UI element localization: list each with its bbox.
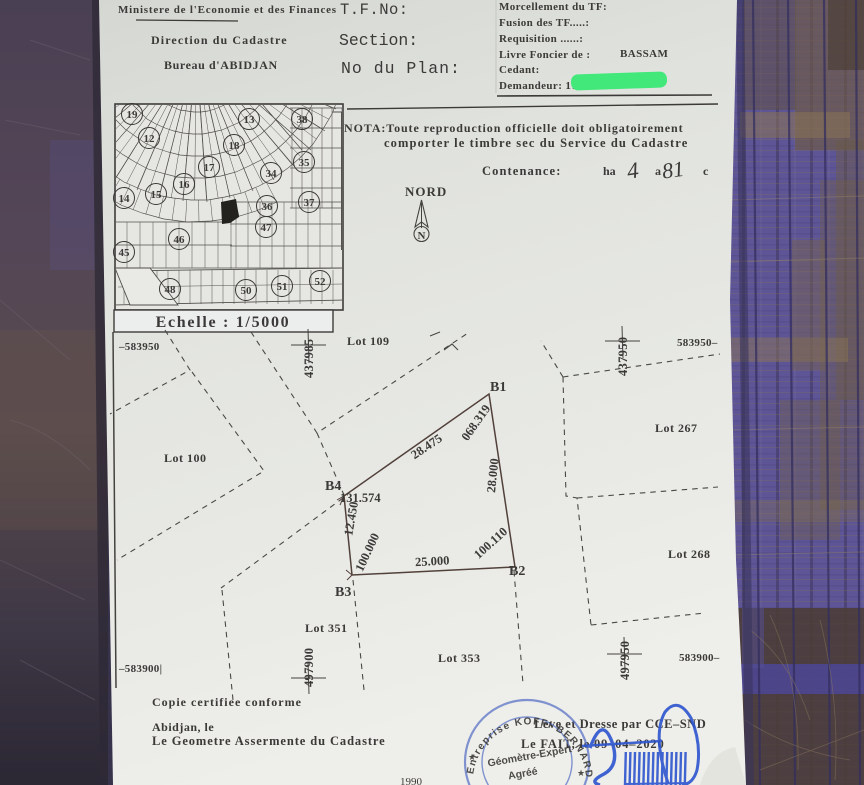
- svg-text:Requisition ......:: Requisition ......:: [499, 33, 583, 45]
- svg-text:Lot 109: Lot 109: [347, 334, 390, 348]
- svg-text:18: 18: [229, 140, 241, 152]
- svg-text:16: 16: [179, 179, 191, 191]
- svg-text:35: 35: [299, 157, 311, 169]
- svg-text:No du Plan:: No du Plan:: [341, 59, 461, 78]
- svg-text:Lot 351: Lot 351: [305, 621, 348, 635]
- svg-text:37: 37: [304, 197, 316, 209]
- svg-text:Copie certifiee conforme: Copie certifiee conforme: [152, 695, 302, 709]
- svg-text:583900–: 583900–: [679, 652, 720, 664]
- svg-text:497950: 497950: [618, 641, 632, 680]
- svg-text:B3: B3: [335, 585, 351, 600]
- svg-text:a: a: [655, 164, 661, 178]
- svg-text:52: 52: [315, 276, 327, 288]
- svg-text:Abidjan, le: Abidjan, le: [152, 720, 214, 734]
- svg-text:12: 12: [144, 133, 156, 145]
- svg-text:Lot 353: Lot 353: [438, 651, 481, 665]
- svg-text:46: 46: [174, 234, 186, 246]
- svg-text:c: c: [703, 164, 709, 178]
- svg-text:45: 45: [119, 247, 131, 259]
- svg-text:★: ★: [468, 752, 476, 762]
- svg-text:T.F.No:: T.F.No:: [340, 1, 409, 19]
- svg-text:B1: B1: [490, 380, 506, 395]
- svg-text:47: 47: [261, 222, 273, 234]
- svg-text:Ministere de l'Economie et des: Ministere de l'Economie et des Finances: [118, 4, 337, 16]
- svg-text:Contenance:: Contenance:: [482, 164, 561, 178]
- svg-text:17: 17: [204, 162, 216, 174]
- svg-text:Lot 268: Lot 268: [668, 547, 711, 561]
- svg-text:19: 19: [127, 109, 139, 121]
- svg-text:13: 13: [244, 114, 256, 126]
- svg-text:Lot 267: Lot 267: [655, 421, 698, 435]
- svg-text:NOTA:Toute reproduction offici: NOTA:Toute reproduction officielle doit …: [344, 121, 683, 135]
- svg-text:437950: 437950: [616, 337, 630, 376]
- svg-text:583950–: 583950–: [677, 337, 718, 349]
- svg-text:Direction du Cadastre: Direction du Cadastre: [151, 33, 288, 47]
- svg-text:14: 14: [119, 193, 131, 205]
- svg-text:25.000: 25.000: [415, 553, 450, 569]
- svg-text:B2: B2: [509, 564, 525, 579]
- svg-text:34: 34: [266, 168, 278, 180]
- svg-text:38: 38: [297, 114, 309, 126]
- svg-text:Echelle : 1/5000: Echelle : 1/5000: [156, 314, 291, 331]
- svg-text:Morcellement du TF:: Morcellement du TF:: [499, 1, 607, 13]
- svg-text:497900: 497900: [302, 648, 316, 687]
- svg-text:BASSAM: BASSAM: [620, 48, 668, 60]
- svg-text:15: 15: [151, 189, 163, 201]
- svg-text:Bureau d'ABIDJAN: Bureau d'ABIDJAN: [164, 58, 278, 72]
- svg-text:Lot 100: Lot 100: [164, 451, 207, 465]
- svg-text:Le Geometre Assermente du Cada: Le Geometre Assermente du Cadastre: [152, 734, 386, 748]
- svg-text:Cedant:: Cedant:: [499, 64, 540, 76]
- svg-text:–583900|: –583900|: [118, 663, 162, 675]
- svg-text:51: 51: [277, 281, 288, 293]
- svg-text:NORD: NORD: [405, 184, 447, 199]
- svg-text:Fusion des TF.....:: Fusion des TF.....:: [499, 17, 589, 29]
- svg-text:–583950: –583950: [118, 341, 160, 353]
- svg-text:ha: ha: [603, 164, 616, 178]
- svg-text:50: 50: [241, 285, 253, 297]
- svg-text:48: 48: [165, 284, 177, 296]
- svg-text:★: ★: [577, 768, 585, 778]
- svg-text:437985: 437985: [302, 339, 316, 378]
- svg-text:1990: 1990: [400, 776, 423, 785]
- svg-text:comporter le timbre sec du Ser: comporter le timbre sec du Service du Ca…: [384, 136, 688, 150]
- svg-text:B4: B4: [325, 479, 341, 494]
- svg-text:Section:: Section:: [339, 31, 418, 50]
- svg-text:Demandeur: 17: Demandeur: 17: [499, 80, 577, 92]
- svg-text:Livre Foncier de :: Livre Foncier de :: [499, 49, 590, 61]
- svg-text:36: 36: [262, 201, 274, 213]
- svg-text:81: 81: [660, 156, 685, 184]
- svg-text:N: N: [418, 230, 426, 242]
